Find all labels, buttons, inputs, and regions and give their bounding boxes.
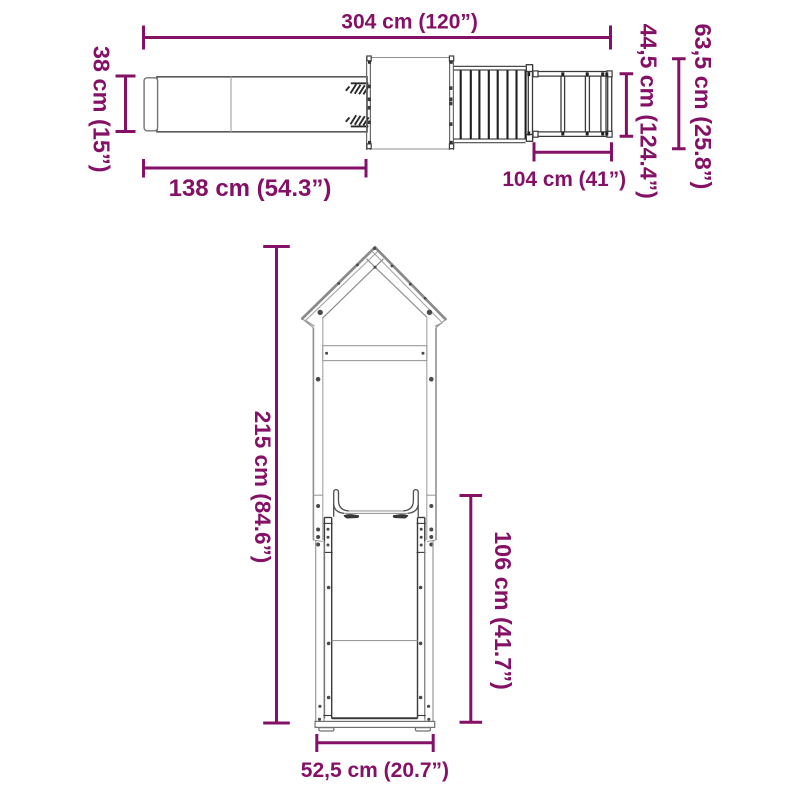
svg-text:63,5 cm (25.8”): 63,5 cm (25.8”) (690, 23, 716, 189)
svg-text:38 cm (15”): 38 cm (15”) (89, 46, 115, 173)
svg-text:104 cm (41”): 104 cm (41”) (502, 168, 626, 191)
svg-text:52,5 cm (20.7”): 52,5 cm (20.7”) (301, 759, 449, 782)
svg-text:44,5 cm (124.4”): 44,5 cm (124.4”) (635, 24, 661, 199)
svg-text:304 cm (120”): 304 cm (120”) (341, 11, 478, 34)
svg-text:106 cm (41.7”): 106 cm (41.7”) (490, 531, 516, 690)
svg-text:138 cm (54.3”): 138 cm (54.3”) (169, 175, 332, 202)
svg-text:215 cm (84.6”): 215 cm (84.6”) (250, 411, 275, 564)
